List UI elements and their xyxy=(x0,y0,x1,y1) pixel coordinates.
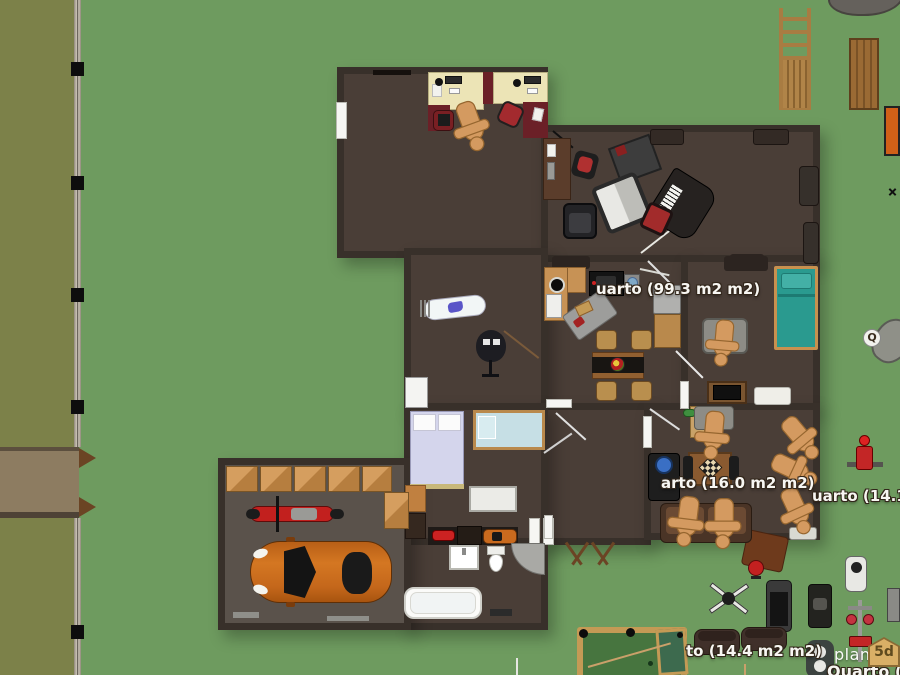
shower-glass-door xyxy=(478,416,496,439)
fence-post xyxy=(71,176,84,190)
fan[interactable] xyxy=(476,330,506,362)
office-chair-left-seat xyxy=(438,114,450,126)
q-marker-label: Q xyxy=(863,329,881,347)
dresser-white[interactable] xyxy=(754,387,791,405)
motorcycle-front-wheel xyxy=(246,509,260,519)
motorcycle-seat xyxy=(291,508,317,520)
lamp-post[interactable] xyxy=(744,664,746,675)
fence-south-segment[interactable] xyxy=(74,518,81,675)
garage-cabinet[interactable] xyxy=(328,466,360,492)
dining-food-plate[interactable] xyxy=(610,357,625,372)
music-desk-paper[interactable] xyxy=(547,144,556,157)
mannequin-lounge[interactable] xyxy=(703,410,725,450)
fan-pole xyxy=(489,360,492,375)
bed-pillow xyxy=(413,414,436,431)
garage-cabinet[interactable] xyxy=(362,466,392,492)
empty-room-door-north[interactable] xyxy=(546,399,572,408)
pool-ball xyxy=(648,661,653,666)
lamp-post[interactable] xyxy=(516,658,518,675)
fan-base xyxy=(482,374,499,377)
car-mirror xyxy=(286,602,295,607)
fan-label xyxy=(493,339,500,345)
white-table[interactable] xyxy=(469,486,517,512)
office-window-west[interactable] xyxy=(336,102,347,139)
room-label-141: uarto (14.1 m2 xyxy=(812,487,900,505)
bathtub-inner xyxy=(410,592,476,614)
bath-mat[interactable] xyxy=(490,609,512,616)
dining-chair[interactable] xyxy=(596,330,617,350)
keyboard[interactable] xyxy=(449,88,460,94)
washing-machine[interactable] xyxy=(405,377,428,408)
car-rear-window xyxy=(342,552,372,594)
gate-door-lower[interactable] xyxy=(79,497,96,517)
gate-door-upper[interactable] xyxy=(79,448,96,468)
kitchen-cabinet[interactable] xyxy=(654,314,681,348)
squat-rack-crossbar xyxy=(848,606,872,610)
fence-post xyxy=(71,400,84,414)
music-desk-gadget[interactable] xyxy=(547,162,555,180)
dining-chair[interactable] xyxy=(631,381,652,401)
dumbbell-plate xyxy=(814,660,826,672)
empty-room-door-south[interactable] xyxy=(544,515,553,539)
music-bench-north-2[interactable] xyxy=(753,129,789,145)
empty-room-door-east[interactable] xyxy=(643,416,652,448)
floorplan-canvas: uarto (99.3 m2 m2) arto (16.0 m2 m2) to … xyxy=(0,0,900,675)
dining-chair[interactable] xyxy=(596,381,617,401)
amplifier-grill xyxy=(569,213,591,233)
room-label-99: uarto (99.3 m2 m2) xyxy=(596,280,760,298)
monitor[interactable] xyxy=(445,76,462,84)
driveway-road[interactable] xyxy=(0,447,79,518)
pool-pocket xyxy=(579,629,588,638)
motorcycle-handlebar xyxy=(276,496,279,532)
punching-ball-base xyxy=(751,576,761,579)
mannequin-sofa[interactable] xyxy=(714,498,734,538)
punching-ball[interactable] xyxy=(748,560,764,576)
fan-label xyxy=(483,339,490,345)
stove-burner[interactable] xyxy=(549,277,565,293)
wood-ladder-planks xyxy=(783,60,807,108)
sink-faucet xyxy=(462,548,466,555)
ironing-board-legs xyxy=(420,300,430,317)
ottoman-top xyxy=(698,631,736,641)
orange-machine[interactable] xyxy=(884,106,900,156)
fence-post xyxy=(71,288,84,302)
office-wall-vent xyxy=(373,70,411,75)
pool-pocket xyxy=(626,628,635,637)
rotator-machine-hub xyxy=(722,592,735,605)
dishwasher[interactable] xyxy=(546,294,562,318)
ottoman-top xyxy=(745,629,783,638)
headset[interactable] xyxy=(435,78,443,86)
car-mirror xyxy=(286,537,295,542)
headboard-bench[interactable] xyxy=(724,256,768,271)
bed-pillow xyxy=(438,414,461,431)
mannequin-armchair[interactable] xyxy=(713,319,735,357)
garage-cabinet[interactable] xyxy=(260,466,292,492)
fence-post xyxy=(71,625,84,639)
mannequin-sofa[interactable] xyxy=(676,495,701,537)
garage-cabinet[interactable] xyxy=(226,466,258,492)
bed-teal-fold xyxy=(778,294,815,297)
garage-corner-cabinet[interactable] xyxy=(384,492,409,529)
garage-vent xyxy=(233,612,259,618)
rowing-machine-seat xyxy=(813,598,827,610)
tv-screen[interactable] xyxy=(713,385,741,400)
squat-rack-plate xyxy=(863,614,874,625)
motorcycle-rear-wheel xyxy=(330,509,344,519)
keyboard[interactable] xyxy=(527,88,538,94)
watermark-5d-badge-label: 5d xyxy=(870,639,898,665)
music-sofa-east-1[interactable] xyxy=(799,166,819,206)
room-empty[interactable] xyxy=(541,403,651,545)
toy-truck-dark[interactable] xyxy=(457,526,482,545)
music-bench-north-1[interactable] xyxy=(650,129,684,145)
bed-teal-pillow xyxy=(781,273,812,289)
bedroom-teal-door[interactable] xyxy=(680,381,689,409)
bedroom-center-door-east[interactable] xyxy=(529,518,540,545)
room-label-16: arto (16.0 m2 m2) xyxy=(661,474,815,492)
exercise-bike-wheel xyxy=(851,562,862,573)
headset[interactable] xyxy=(513,79,521,87)
treadmill-belt xyxy=(770,592,788,626)
room-label-144: to (14.4 m2 m2) xyxy=(686,642,822,660)
chalkboard-magnet xyxy=(677,632,683,638)
garage-cabinet[interactable] xyxy=(294,466,326,492)
squat-rack-plate xyxy=(846,614,857,625)
garage-vent xyxy=(327,616,369,621)
rock-north[interactable] xyxy=(828,0,900,16)
chalkboard[interactable] xyxy=(655,628,688,675)
bench-press-pad xyxy=(856,446,873,470)
cable-machine[interactable] xyxy=(887,588,900,622)
toy-motorcycle[interactable] xyxy=(432,530,455,541)
dining-chair[interactable] xyxy=(631,330,652,350)
olive-terrain-strip xyxy=(0,0,75,675)
bench-press-ball xyxy=(859,435,870,446)
watermark-5d-badge-icon: 5d xyxy=(868,637,900,667)
fence-post xyxy=(71,62,84,76)
desk-paper[interactable] xyxy=(432,84,442,97)
wood-bench[interactable] xyxy=(849,38,879,110)
toy-car-window xyxy=(492,532,502,541)
monitor[interactable] xyxy=(524,76,541,84)
water-cooler-bottle xyxy=(655,456,673,474)
music-sofa-east-2[interactable] xyxy=(803,222,819,264)
